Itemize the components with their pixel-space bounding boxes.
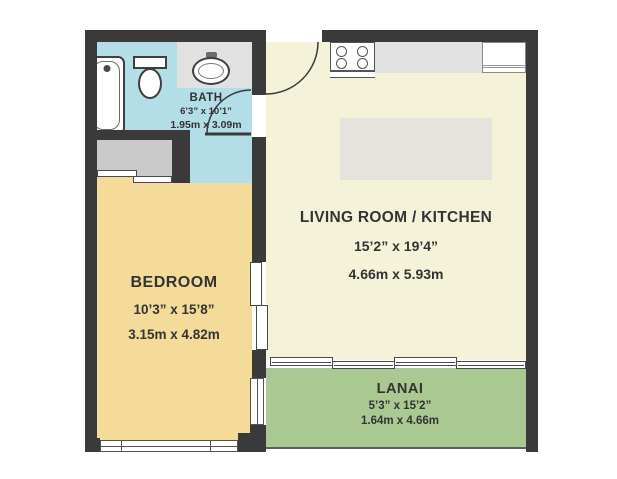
bathroom-sink-icon xyxy=(192,57,230,85)
stove-burner-icon xyxy=(357,46,368,57)
stove-burner-icon xyxy=(336,46,347,57)
room-dim-m: 3.15m x 4.82m xyxy=(128,327,220,342)
lanai-sliding-door-panel xyxy=(270,357,333,366)
room-dim-m: 1.64m x 4.66m xyxy=(361,415,439,427)
wall-bedroom-living-lower xyxy=(252,350,266,378)
wall-closet-right xyxy=(172,130,190,183)
stove-front-edge xyxy=(330,71,375,78)
room-dim-m: 1.95m x 3.09m xyxy=(170,119,241,131)
kitchen-island xyxy=(340,118,492,180)
room-name: LANAI xyxy=(361,381,439,397)
wall-right xyxy=(526,30,538,452)
pocket-door-panel xyxy=(250,262,262,306)
lanai-sliding-door-panel xyxy=(332,361,395,369)
wall-top-left xyxy=(85,30,266,42)
toilet-icon xyxy=(138,68,162,99)
bath-passage-floor xyxy=(190,137,252,183)
closet-sliding-door-panel xyxy=(133,176,172,183)
sink-basin xyxy=(198,63,224,79)
stove-icon xyxy=(330,42,375,71)
room-dim-ft: 10’3” x 15’8” xyxy=(128,302,220,317)
bedroom-lanai-window xyxy=(250,378,264,425)
stove-burner-icon xyxy=(336,58,347,69)
stove-burner-icon xyxy=(357,58,368,69)
window-mullion xyxy=(121,441,122,451)
lanai-label: LANAI 5’3” x 15’2” 1.64m x 4.66m xyxy=(361,381,439,427)
window-mullion xyxy=(210,441,211,451)
floor-plan: BATH 6’3” x 10’1” 1.95m x 3.09m BEDROOM … xyxy=(0,0,617,479)
bath-label: BATH 6’3” x 10’1” 1.95m x 3.09m xyxy=(170,92,241,131)
room-name: BEDROOM xyxy=(128,274,220,292)
shower-head-icon xyxy=(103,65,110,72)
room-dim-m: 4.66m x 5.93m xyxy=(300,266,492,282)
bedroom-window xyxy=(100,440,238,452)
pocket-door-panel xyxy=(256,305,268,350)
room-name: BATH xyxy=(170,92,241,104)
living-room-kitchen-label: LIVING ROOM / KITCHEN 15’2” x 19’4” 4.66… xyxy=(300,209,492,282)
refrigerator-edge xyxy=(483,65,525,68)
room-dim-ft: 6’3” x 10’1” xyxy=(170,106,241,117)
wall-bedroom-living xyxy=(252,137,266,262)
lanai-sliding-door-panel xyxy=(456,361,526,369)
wall-bath-right-upper xyxy=(252,42,266,95)
closet-sliding-door-panel xyxy=(97,170,137,177)
wall-bedroom-lanai-lower xyxy=(250,425,266,440)
room-dim-ft: 5’3” x 15’2” xyxy=(361,400,439,412)
room-dim-ft: 15’2” x 19’4” xyxy=(300,238,492,254)
bedroom-label: BEDROOM 10’3” x 15’8” 3.15m x 4.82m xyxy=(128,274,220,342)
wall-left xyxy=(85,30,97,452)
wall-top-right xyxy=(322,30,538,42)
refrigerator-icon xyxy=(482,42,526,73)
living-room-kitchen-floor xyxy=(266,42,526,360)
lanai-sliding-door-panel xyxy=(394,357,457,366)
room-name: LIVING ROOM / KITCHEN xyxy=(300,209,492,227)
wall-bottom-left-corner xyxy=(85,438,100,452)
